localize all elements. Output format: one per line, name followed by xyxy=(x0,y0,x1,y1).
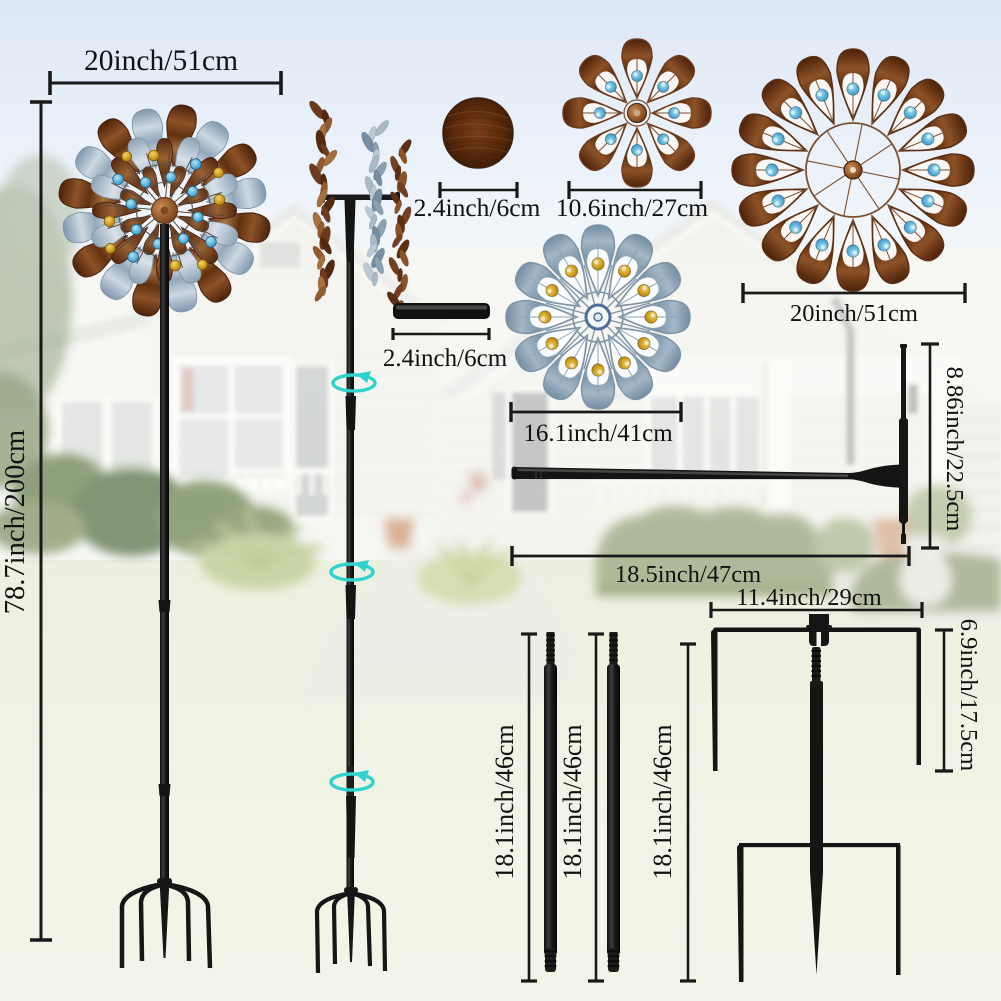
svg-text:10.6inch/27cm: 10.6inch/27cm xyxy=(556,193,708,222)
svg-text:78.7inch/200cm: 78.7inch/200cm xyxy=(0,430,31,614)
svg-text:18.1inch/46cm: 18.1inch/46cm xyxy=(490,724,519,879)
svg-text:11.4inch/29cm: 11.4inch/29cm xyxy=(736,584,881,611)
svg-text:20inch/51cm: 20inch/51cm xyxy=(790,300,918,327)
svg-text:6.9inch/17.5cm: 6.9inch/17.5cm xyxy=(955,619,982,771)
svg-text:18.1inch/46cm: 18.1inch/46cm xyxy=(558,724,587,879)
svg-text:2.4inch/6cm: 2.4inch/6cm xyxy=(414,193,541,222)
svg-text:2.4inch/6cm: 2.4inch/6cm xyxy=(383,345,508,372)
svg-text:16.1inch/41cm: 16.1inch/41cm xyxy=(523,420,673,447)
svg-text:18.1inch/46cm: 18.1inch/46cm xyxy=(648,724,677,879)
svg-text:20inch/51cm: 20inch/51cm xyxy=(84,45,238,77)
svg-text:8.86inch/22.5cm: 8.86inch/22.5cm xyxy=(941,367,968,532)
